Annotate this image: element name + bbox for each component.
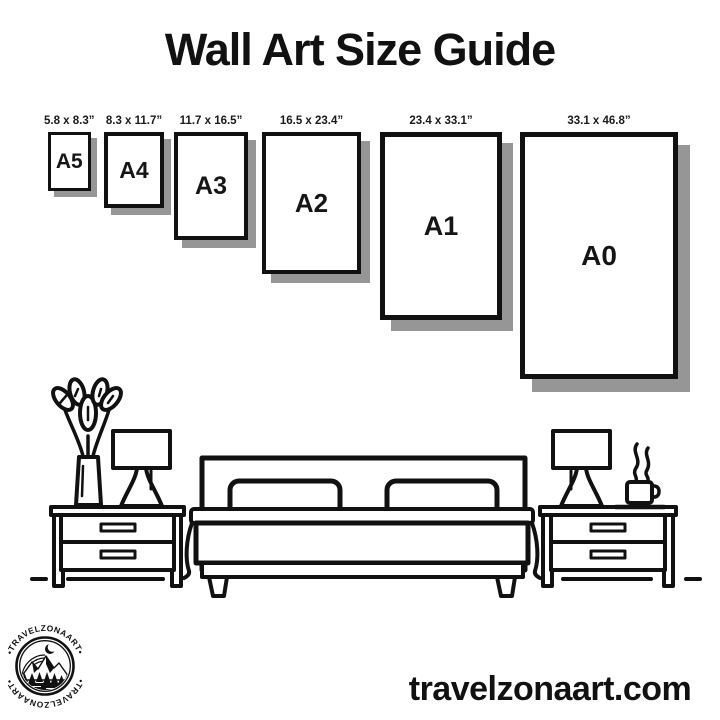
- size-label: A0: [581, 240, 617, 272]
- size-dimension-label: 11.7 x 16.5”: [180, 113, 243, 129]
- blanket-drape-left: [184, 523, 192, 578]
- drawer-handle: [101, 551, 135, 558]
- bed-leg: [209, 577, 227, 596]
- paper-sheet-a0: A0: [520, 132, 678, 379]
- size-dimension-label: 8.3 x 11.7”: [106, 113, 162, 129]
- steam-icon: [646, 448, 649, 480]
- vase-highlight: [82, 466, 83, 496]
- table-lamp-icon-left: [113, 431, 170, 506]
- bed-leg: [497, 577, 515, 596]
- wall-art-size-guide-poster: Wall Art Size Guide 5.8 x 8.3” A5 8.3 x …: [0, 0, 720, 720]
- paper-sheet-a1: A1: [380, 132, 502, 320]
- paper-sheet-a3: A3: [174, 132, 248, 240]
- size-label: A3: [195, 172, 227, 201]
- size-item-a3: 11.7 x 16.5” A3: [174, 113, 248, 240]
- drawer-handle: [101, 524, 135, 531]
- lamp-base: [121, 468, 162, 506]
- nightstand-icon-left: [51, 507, 184, 586]
- blanket-drape-right: [532, 523, 540, 578]
- size-item-a1: 23.4 x 33.1” A1: [380, 113, 502, 320]
- nightstand-icon-right: [540, 507, 676, 586]
- vase: [76, 457, 101, 505]
- brand-logo-badge: •TRAVELZONAART• •TRAVELZONAART•: [1, 622, 89, 710]
- paper-sheet-a4: A4: [104, 132, 164, 208]
- coffee-cup-icon: [616, 444, 664, 507]
- table-lamp-icon-right: [553, 431, 610, 506]
- bedroom-illustration: [0, 370, 720, 610]
- bed-icon: [184, 458, 540, 596]
- bed-base: [196, 523, 528, 563]
- size-dimension-label: 16.5 x 23.4”: [280, 113, 343, 129]
- size-item-a2: 16.5 x 23.4” A2: [262, 113, 361, 274]
- size-label: A5: [56, 150, 83, 174]
- cup-body: [627, 482, 652, 503]
- bed-plinth: [202, 563, 523, 577]
- size-item-a5: 5.8 x 8.3” A5: [44, 113, 95, 191]
- lamp-shade: [113, 431, 170, 468]
- website-url: travelzonaart.com: [380, 670, 720, 709]
- size-label: A1: [424, 211, 459, 242]
- size-item-a4: 8.3 x 11.7” A4: [104, 113, 164, 208]
- size-label: A2: [295, 188, 328, 219]
- size-dimension-label: 5.8 x 8.3”: [44, 113, 95, 129]
- size-dimension-label: 33.1 x 46.8”: [567, 113, 630, 129]
- size-label: A4: [119, 157, 148, 184]
- steam-icon: [635, 444, 638, 481]
- size-dimension-label: 23.4 x 33.1”: [409, 113, 472, 129]
- page-title: Wall Art Size Guide: [0, 24, 720, 76]
- paper-sheet-a2: A2: [262, 132, 361, 274]
- drawer-handle: [591, 524, 625, 531]
- paper-sheet-a5: A5: [48, 132, 91, 191]
- lamp-shade: [553, 431, 610, 468]
- size-item-a0: 33.1 x 46.8” A0: [520, 113, 678, 379]
- drawer-handle: [591, 551, 625, 558]
- lamp-base: [561, 468, 602, 506]
